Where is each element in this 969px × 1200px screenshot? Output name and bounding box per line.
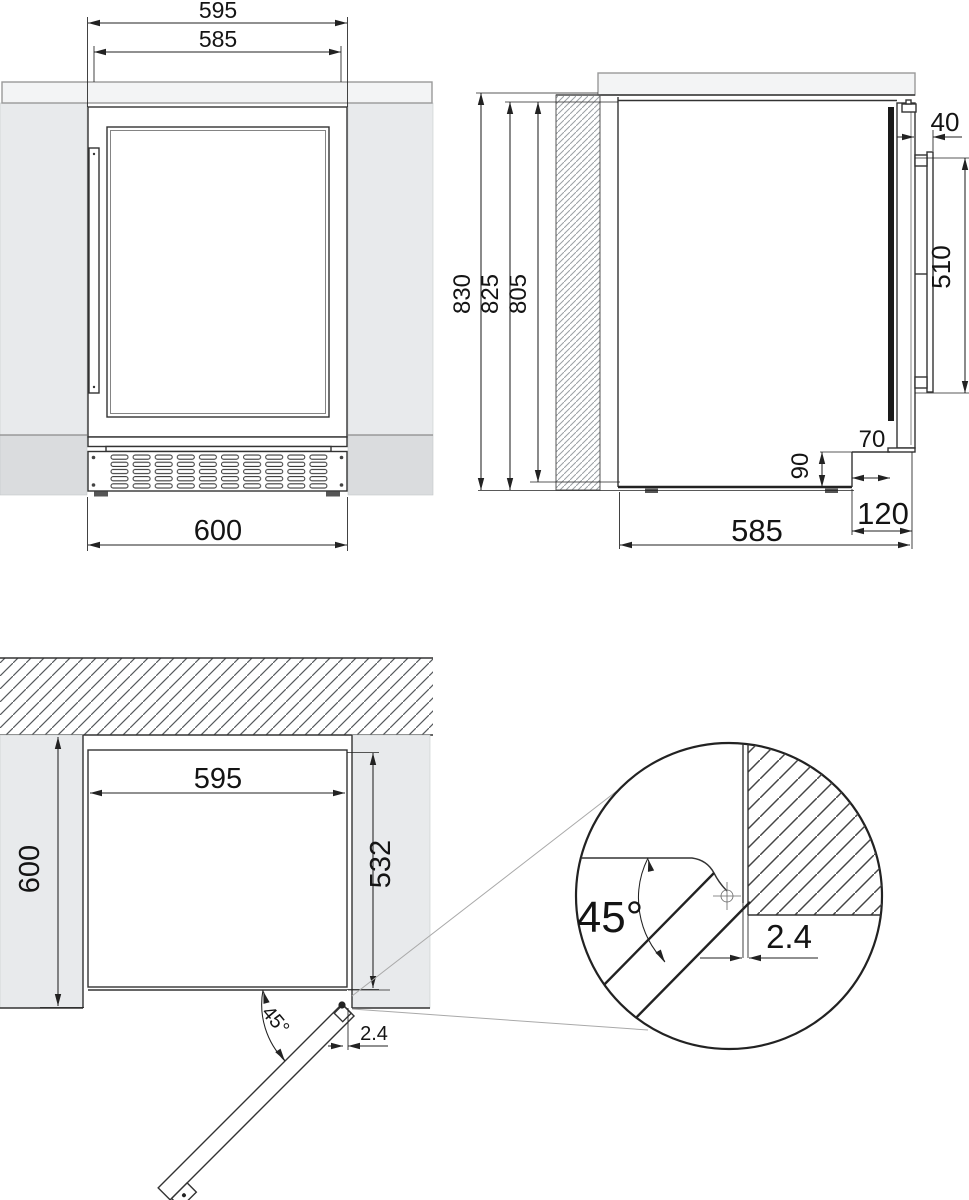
- cabinet-bottom-band: [88, 437, 347, 447]
- left-foot: [94, 492, 108, 497]
- left-wall-panel: [0, 103, 87, 435]
- hinge-detail-view: 45° 2.4: [570, 740, 890, 1049]
- handle-bottom-bracket: [915, 377, 927, 388]
- door-panel-side: [897, 103, 915, 448]
- rear-wall-hatch: [556, 95, 600, 490]
- dim-handle-clearance: 40: [931, 107, 960, 137]
- dim-plan-body-depth: 532: [365, 840, 397, 888]
- dim-plan-door-angle: 45°: [257, 1002, 293, 1039]
- dim-side-total-height: 830: [449, 274, 476, 314]
- open-door: [158, 1004, 363, 1200]
- dim-side-appliance-height: 805: [505, 274, 532, 314]
- detail-wall-hatch: [748, 740, 890, 915]
- dim-side-appliance-depth: 585: [731, 513, 783, 548]
- top-hinge-cover: [902, 104, 916, 112]
- appliance-door-front: [88, 107, 347, 437]
- door-seal-bar: [888, 107, 894, 421]
- rear-wall-band-hatch: [0, 658, 433, 735]
- left-plinth-band: [0, 435, 87, 495]
- dim-detail-wall-gap: 2.4: [766, 918, 812, 955]
- dim-front-overall-width: 600: [194, 515, 242, 547]
- dim-side-niche-height: 825: [477, 274, 504, 314]
- countertop-front: [2, 82, 432, 103]
- vent-grille-louvers: [110, 454, 331, 490]
- technical-drawing-canvas: 595 585 600: [0, 0, 969, 1200]
- plan-view: 595 600 532 45° 2.4: [0, 658, 648, 1200]
- door-bottom-edge: [888, 448, 915, 452]
- dim-recess-depth: 70: [859, 426, 886, 453]
- dim-front-appliance-width: 585: [199, 26, 237, 52]
- dim-plan-wall-gap: 2.4: [360, 1023, 388, 1045]
- dim-detail-door-angle: 45°: [577, 893, 644, 942]
- right-plinth-band: [348, 435, 433, 495]
- vent-grille-lip: [106, 447, 331, 452]
- countertop-side: [598, 73, 915, 95]
- handle-top-bracket: [915, 155, 927, 166]
- front-elevation-view: 595 585 600: [0, 0, 433, 551]
- dim-handle-length: 510: [926, 245, 956, 288]
- side-section-view: 830 825 805 40 510 70 90 120 585: [449, 73, 969, 549]
- hinge-pivot: [338, 1001, 345, 1008]
- right-wall-panel: [348, 103, 433, 435]
- right-foot: [326, 492, 340, 497]
- dim-recess-height: 90: [787, 453, 814, 480]
- dim-plinth-recess: 120: [857, 496, 909, 531]
- dim-plan-niche-depth: 600: [14, 845, 46, 893]
- door-handle-front: [89, 148, 99, 393]
- dim-plan-appliance-width: 595: [194, 763, 242, 795]
- installation-drawing: 595 585 600: [0, 0, 969, 1200]
- dim-front-niche-width: 595: [199, 0, 237, 23]
